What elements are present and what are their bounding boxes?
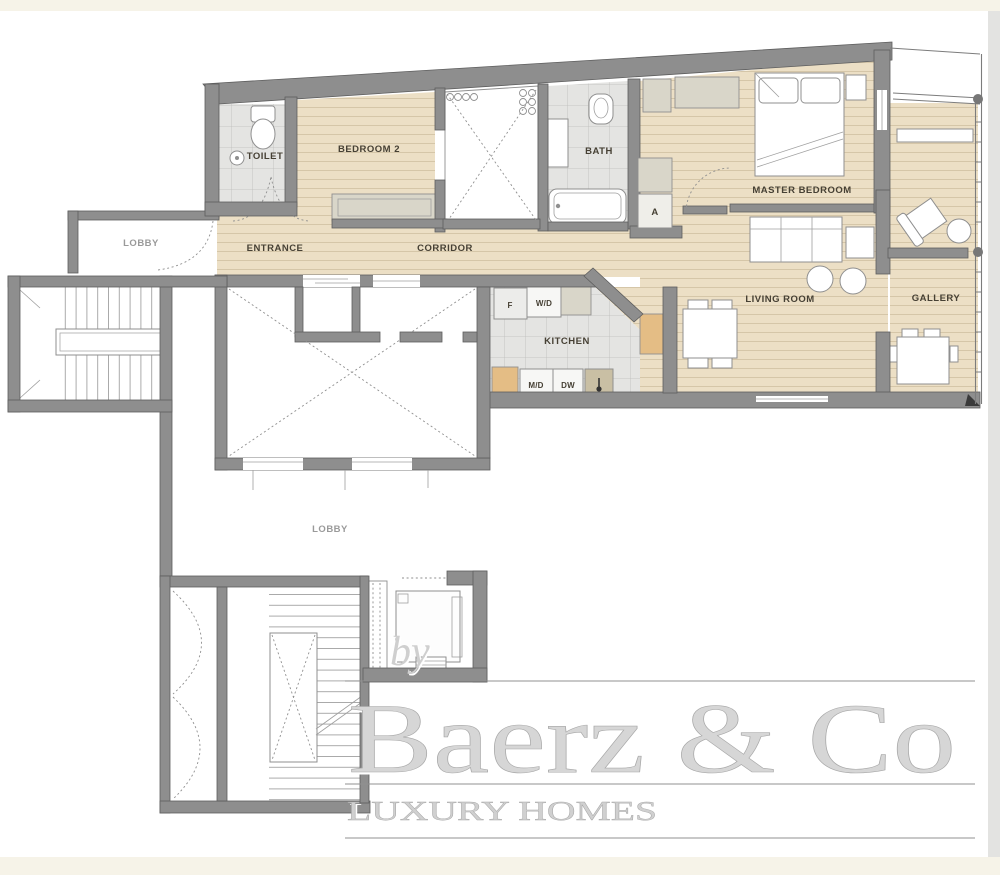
closet-box [638, 158, 672, 192]
master-bed [755, 73, 844, 176]
railing-post-1 [973, 94, 983, 104]
lower-room-door-swing-2 [173, 697, 200, 799]
lobby-upper-label: LOBBY [123, 238, 159, 249]
side-table [846, 227, 874, 258]
tall-cabinet [640, 314, 663, 354]
master-right-wall [874, 50, 890, 213]
floor-drain-dot [235, 156, 239, 160]
left-outer-wall-upper [205, 84, 219, 218]
dining-table-gallery [889, 329, 958, 384]
dining-table-living [683, 300, 737, 368]
closet-a-label: A [651, 207, 658, 218]
sofa [750, 217, 842, 262]
nightstand [846, 75, 866, 100]
page-right-strip [988, 11, 1000, 857]
master-bedroom-label: MASTER BEDROOM [752, 185, 851, 196]
entrance-label: ENTRANCE [247, 243, 304, 254]
kitchen-label: KITCHEN [544, 336, 590, 347]
pouf-1 [807, 266, 833, 292]
counter-box [561, 285, 591, 315]
bedroom2-label: BEDROOM 2 [338, 144, 400, 155]
lobby-left-wall [68, 211, 78, 273]
bedroom2-bed [332, 194, 437, 221]
bath-cabinet [548, 119, 568, 167]
watermark-tagline: LUXURY HOMES [347, 796, 657, 826]
gallery-label: GALLERY [912, 293, 961, 304]
railing-post-2 [973, 247, 983, 257]
wardrobe-2 [675, 77, 739, 108]
lower-room-door-swing-1 [173, 591, 202, 694]
page-bottom-band [0, 857, 1000, 875]
page-top-band [0, 0, 1000, 11]
washer-dryer-label: W/D [536, 299, 552, 308]
watermark-by: by [390, 629, 430, 675]
wardrobe-1 [643, 79, 671, 112]
fridge-label: F [507, 301, 512, 310]
bath-label: BATH [585, 146, 613, 157]
round-table [947, 219, 971, 243]
floor-plan: TOILET BEDROOM 2 BATH MASTER BEDROOM LOB… [0, 0, 1000, 875]
microwave-label: M/D [528, 381, 543, 390]
vent-shaft-strip [368, 581, 387, 675]
terrace-planter [897, 129, 973, 142]
bottom-wall-upper-band [480, 392, 980, 408]
toilet-label: TOILET [247, 151, 284, 162]
toilet-fixture-icon [251, 106, 275, 149]
lobby-main-label: LOBBY [312, 524, 348, 535]
pouf-2 [840, 268, 866, 294]
staircase-upper-left [10, 280, 166, 405]
corridor-label: CORRIDOR [417, 243, 473, 254]
master-slider-wall [730, 204, 876, 212]
entrance-door-swing [158, 221, 213, 270]
bathtub-icon [549, 189, 626, 224]
lobby-top-wall [68, 211, 219, 220]
living-room-label: LIVING ROOM [745, 294, 814, 305]
bath-sink-icon [589, 94, 613, 124]
dishwasher-label: DW [561, 381, 575, 390]
watermark-brand: Baerz & Co [348, 683, 956, 794]
floor-plan-page: TOILET BEDROOM 2 BATH MASTER BEDROOM LOB… [0, 0, 1000, 875]
